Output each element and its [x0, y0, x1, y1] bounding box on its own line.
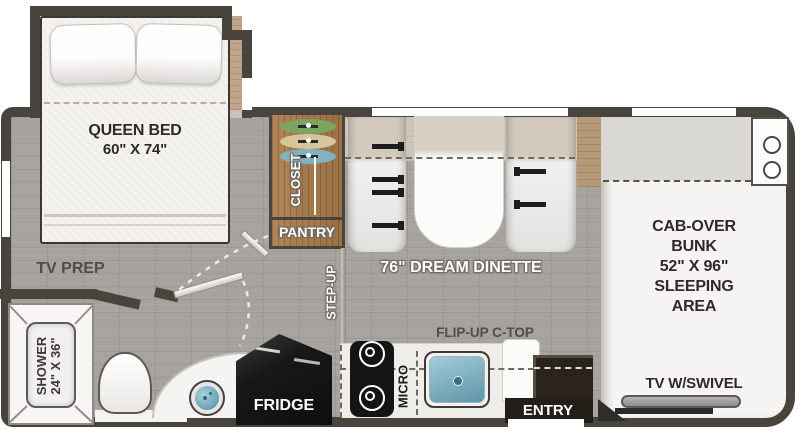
- pillow-icon: [135, 23, 223, 85]
- toilet-icon: [98, 352, 152, 414]
- cab-panel-knob-icon: [763, 136, 781, 154]
- tv-base-bar: [615, 408, 713, 414]
- cab-slide-seam: [603, 180, 751, 182]
- dinette-bench-right: [506, 117, 576, 252]
- dinette-label: 76" DREAM DINETTE: [361, 259, 561, 277]
- step-up-label: STEP-UP: [326, 256, 339, 330]
- hanging-clothes-icon: [280, 119, 336, 134]
- entry-door-gap: [508, 419, 584, 427]
- slideout-wall-jog-h: [222, 30, 252, 40]
- step-edge: [341, 248, 346, 346]
- closet-rod: [314, 157, 316, 215]
- seatbelt-icon: [520, 169, 546, 174]
- rv-floorplan: 76" DREAM DINETTE CLOSET PANTRY STEP-UP …: [0, 0, 800, 430]
- cab-control-panel: [751, 117, 789, 186]
- pantry-label: PANTRY: [271, 224, 343, 240]
- cab-over-bed-deck: [601, 117, 752, 181]
- seatbelt-icon: [520, 202, 546, 207]
- cab-over-bunk-label: CAB-OVER BUNK 52" X 96" SLEEPING AREA: [609, 217, 779, 317]
- window-gap-left: [2, 161, 10, 237]
- dinette-bench-left: [348, 117, 406, 252]
- window-gap-slideout: [242, 78, 252, 110]
- tv-icon: [621, 395, 741, 408]
- counter-dash-mid: [416, 351, 418, 415]
- queen-bed-size: 60" X 74": [42, 141, 228, 158]
- seatbelt-icon: [372, 177, 398, 182]
- entry-label: ENTRY: [509, 402, 587, 419]
- flip-up-label: FLIP-UP C-TOP: [405, 325, 565, 340]
- queen-bed: QUEEN BED 60" X 74": [40, 16, 230, 244]
- shower-label: SHOWER 24" X 36": [35, 320, 65, 412]
- entry-steps-upper: [533, 355, 593, 400]
- window-gap-top-1: [372, 108, 568, 116]
- seatbelt-icon: [372, 190, 398, 195]
- bed-slideout-seam: [44, 102, 226, 104]
- slideout-wall-left: [30, 6, 40, 118]
- dinette-side-cabinet: [577, 117, 603, 187]
- cab-panel-knob-icon: [763, 161, 781, 179]
- bed-fold-line: [44, 224, 226, 226]
- dinette-table: [414, 111, 504, 248]
- bath-wall: [0, 289, 97, 299]
- counter-dash-left: [340, 345, 342, 418]
- closet-label: CLOSET: [289, 145, 303, 215]
- micro-label: MICRO: [397, 352, 410, 422]
- closet-pantry-divider: [272, 217, 342, 220]
- bed-fold-line: [44, 214, 226, 217]
- tv-swivel-label: TV W/SWIVEL: [619, 375, 769, 392]
- seatbelt-icon: [372, 144, 398, 149]
- bath-sink-icon: [189, 380, 225, 416]
- tv-prep-label: TV PREP: [28, 260, 113, 278]
- pillow-icon: [49, 23, 137, 85]
- slideout-wall-top: [30, 6, 232, 16]
- kitchen-sink: [424, 351, 490, 408]
- stove-burners-icon: [350, 341, 394, 417]
- entry-dash: [534, 367, 592, 369]
- window-gap-top-2: [632, 108, 736, 116]
- fridge-label: FRIDGE: [236, 397, 332, 415]
- queen-bed-label: QUEEN BED: [42, 122, 228, 140]
- seatbelt-icon: [372, 223, 398, 228]
- slideout-seam-dinette: [345, 157, 575, 159]
